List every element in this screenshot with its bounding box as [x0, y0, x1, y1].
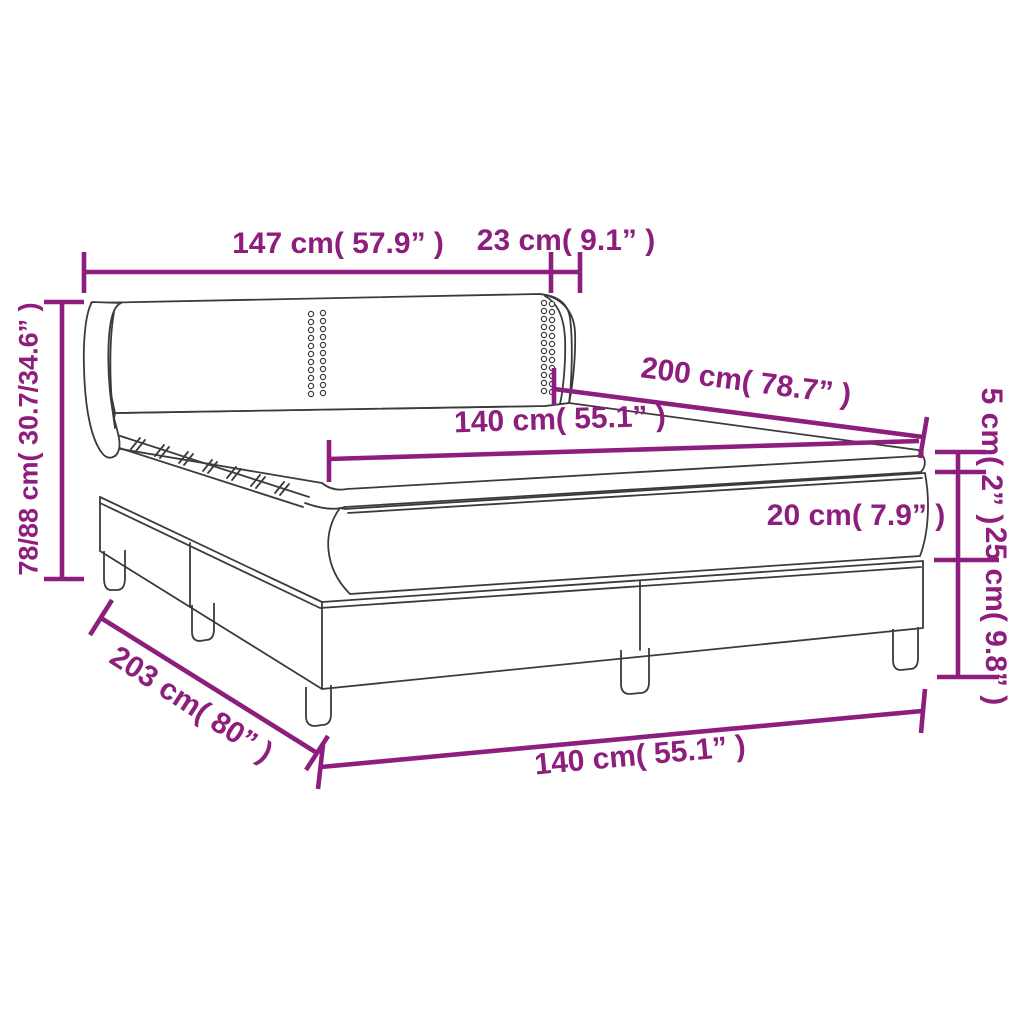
dim-label-total-height: 78/88 cm( 30.7/34.6” ): [16, 302, 43, 575]
dim-label-mattress-height: 20 cm( 7.9” ): [767, 501, 945, 531]
dim-label-topper-height: 5 cm( 2” ): [976, 388, 1006, 525]
dim-label-headboard-wing-depth: 23 cm( 9.1” ): [477, 226, 655, 256]
dimension-diagram: 147 cm( 57.9” ) 23 cm( 9.1” ) 78/88 cm( …: [0, 0, 1024, 1024]
dim-total-height-line: [44, 302, 84, 579]
dim-label-base-height: 25 cm( 9.8” ): [980, 527, 1010, 705]
dim-mattress-width-bottom-line: [318, 689, 925, 789]
dim-label-mattress-width-top: 140 cm( 55.1” ): [454, 402, 667, 439]
dim-label-headboard-width: 147 cm( 57.9” ): [232, 229, 444, 259]
mattress-foot-face: [328, 473, 928, 594]
